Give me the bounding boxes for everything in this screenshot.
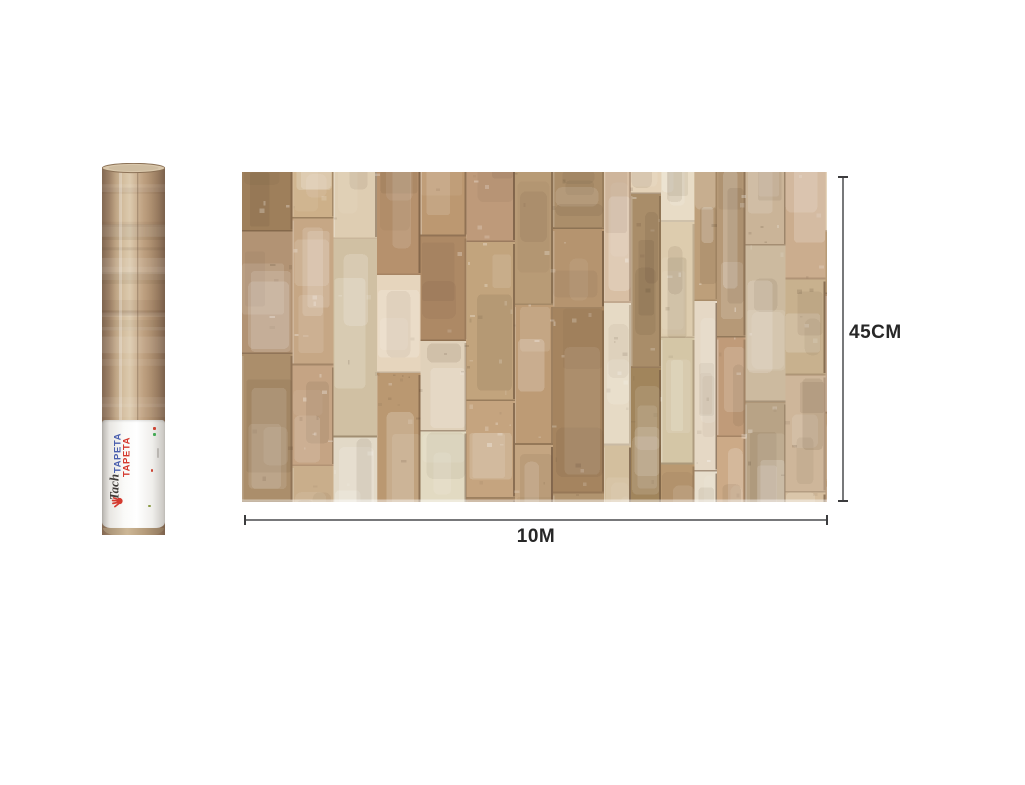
wallpaper-roll: TAPETA TAPETA Tach [102, 163, 165, 535]
height-dimension-line [842, 177, 844, 501]
wallpaper-sample [242, 172, 827, 502]
roll-label: TAPETA TAPETA Tach [102, 420, 165, 528]
label-word-red: TAPETA [122, 437, 132, 477]
label-speck [151, 469, 153, 472]
width-label: 10M [517, 526, 555, 547]
width-label-container: 10M [245, 526, 827, 548]
width-dimension-cap-right [826, 515, 828, 525]
height-dimension-cap-top [838, 176, 848, 178]
label-speck [153, 433, 156, 436]
label-speck [153, 427, 156, 430]
label-speck [157, 448, 159, 458]
label-speck [148, 505, 151, 507]
product-dimension-image: TAPETA TAPETA Tach [0, 0, 1025, 785]
width-dimension-line [245, 519, 827, 521]
roll-bottom-end [103, 528, 164, 535]
width-dimension-cap-left [244, 515, 246, 525]
height-dimension-cap-bottom [838, 500, 848, 502]
height-label: 45CM [849, 322, 902, 344]
sample-texture [242, 172, 827, 502]
